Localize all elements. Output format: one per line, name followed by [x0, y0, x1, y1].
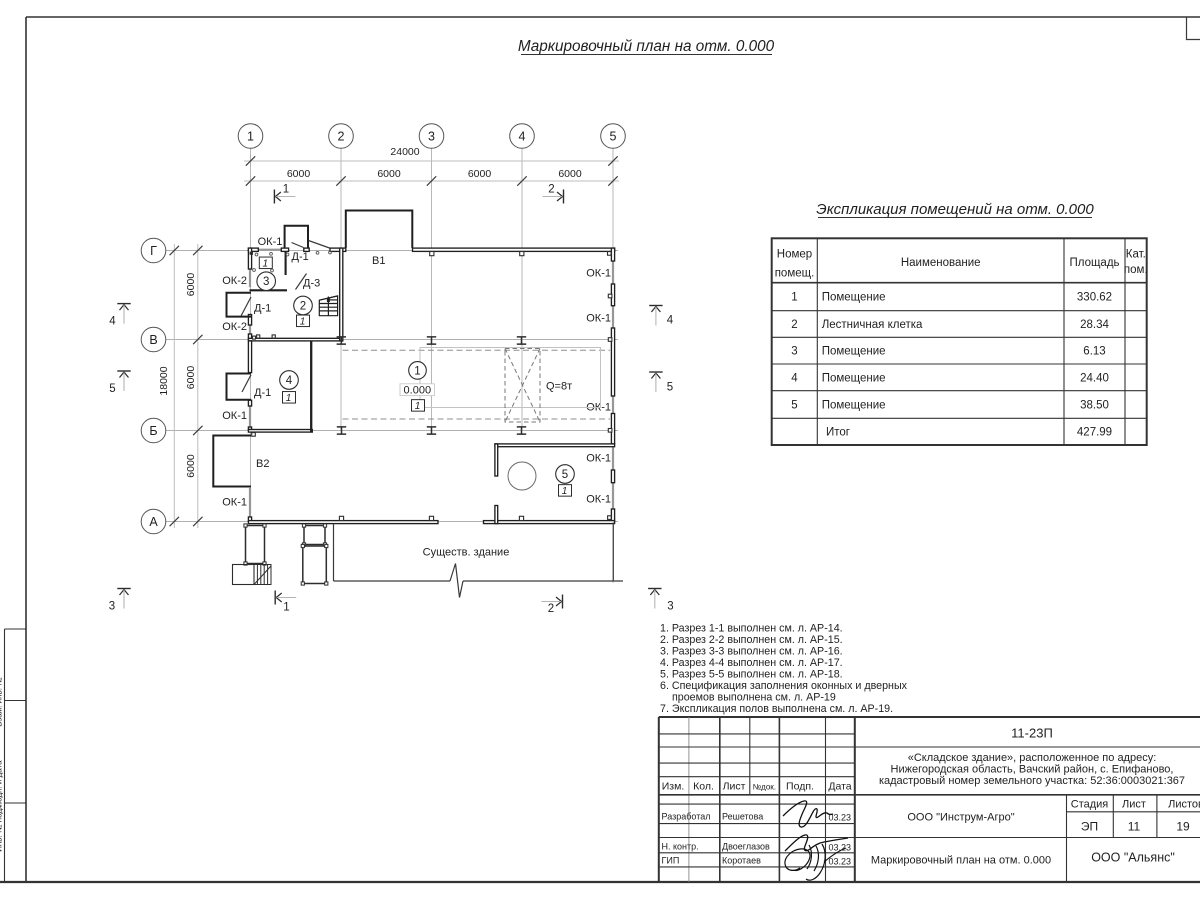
- svg-text:1: 1: [283, 602, 289, 614]
- svg-text:5: 5: [562, 469, 568, 481]
- svg-text:3. Разрез 3-3 выполнен см. л.: 3. Разрез 3-3 выполнен см. л. АР-16.: [660, 646, 843, 658]
- svg-text:Существ. здание: Существ. здание: [423, 547, 510, 559]
- svg-text:2: 2: [338, 130, 345, 144]
- svg-text:5: 5: [791, 400, 797, 412]
- svg-text:6000: 6000: [377, 168, 401, 180]
- svg-text:7. Экспликация полов выполнена: 7. Экспликация полов выполнена см. л. АР…: [660, 703, 893, 715]
- svg-text:Помещение: Помещение: [822, 372, 886, 384]
- svg-text:3: 3: [109, 601, 115, 613]
- svg-text:Помещение: Помещение: [822, 346, 886, 358]
- svg-text:Д-1: Д-1: [292, 251, 309, 263]
- svg-text:18000: 18000: [158, 366, 170, 395]
- svg-text:1. Разрез 1-1 выполнен см. л.: 1. Разрез 1-1 выполнен см. л. АР-14.: [660, 623, 843, 635]
- svg-text:Номер: Номер: [777, 249, 812, 261]
- svg-text:Д-1: Д-1: [254, 387, 271, 399]
- svg-text:В: В: [149, 333, 157, 347]
- svg-text:2: 2: [548, 184, 554, 196]
- svg-text:В1: В1: [372, 255, 385, 267]
- svg-text:ООО "Альянс": ООО "Альянс": [1091, 851, 1175, 865]
- svg-text:№док.: №док.: [753, 783, 776, 792]
- svg-text:пом.: пом.: [1124, 264, 1148, 276]
- svg-text:38.50: 38.50: [1080, 400, 1109, 412]
- svg-text:3: 3: [428, 130, 435, 144]
- svg-text:Стадия: Стадия: [1071, 799, 1109, 811]
- svg-text:ООО "Инструм-Агро": ООО "Инструм-Агро": [907, 812, 1014, 824]
- svg-text:3: 3: [791, 346, 797, 358]
- svg-text:Листов: Листов: [1168, 799, 1200, 811]
- svg-text:проемов выполнена см. л. АР-19: проемов выполнена см. л. АР-19: [672, 692, 836, 704]
- svg-text:Д-1: Д-1: [254, 303, 271, 315]
- svg-text:ОК-1: ОК-1: [586, 312, 611, 324]
- svg-text:4: 4: [791, 372, 798, 384]
- svg-text:6.13: 6.13: [1083, 346, 1105, 358]
- svg-text:Изм.: Изм.: [662, 781, 685, 793]
- svg-text:6000: 6000: [185, 273, 197, 297]
- svg-text:6000: 6000: [558, 168, 582, 180]
- svg-text:Коротаев: Коротаев: [722, 855, 761, 865]
- svg-text:24.40: 24.40: [1080, 372, 1109, 384]
- svg-text:Q=8т: Q=8т: [546, 381, 572, 393]
- svg-text:Площадь: Площадь: [1069, 257, 1119, 269]
- svg-text:1: 1: [286, 393, 292, 404]
- svg-text:6000: 6000: [185, 366, 197, 390]
- svg-text:2: 2: [548, 603, 554, 615]
- svg-text:помещ.: помещ.: [775, 268, 815, 280]
- svg-text:ГИП: ГИП: [662, 855, 680, 865]
- svg-text:0.000: 0.000: [404, 384, 432, 396]
- svg-text:3: 3: [667, 601, 673, 613]
- svg-text:Лист: Лист: [1122, 799, 1146, 811]
- svg-text:1: 1: [263, 259, 269, 270]
- svg-text:Б: Б: [149, 424, 157, 438]
- svg-text:Инв. № подл.: Инв. № подл.: [0, 802, 4, 852]
- svg-text:ОК-1: ОК-1: [222, 410, 247, 422]
- svg-text:Кат.: Кат.: [1126, 249, 1146, 261]
- svg-text:Нижегородская область, Вачский: Нижегородская область, Вачский район, с.…: [891, 764, 1174, 776]
- svg-text:Итог: Итог: [826, 427, 850, 439]
- svg-text:Помещение: Помещение: [822, 292, 886, 304]
- svg-text:Подп.: Подп.: [786, 781, 814, 793]
- svg-text:11: 11: [1128, 820, 1141, 834]
- svg-text:4. Разрез 4-4 выполнен см. л.: 4. Разрез 4-4 выполнен см. л. АР-17.: [660, 657, 843, 669]
- svg-text:24000: 24000: [390, 146, 419, 158]
- svg-text:ОК-1: ОК-1: [258, 236, 283, 248]
- svg-text:4: 4: [519, 130, 526, 144]
- svg-text:1: 1: [283, 184, 289, 196]
- svg-text:2: 2: [791, 319, 797, 331]
- svg-text:ОК-2: ОК-2: [222, 275, 247, 287]
- svg-text:Кол.: Кол.: [693, 781, 714, 793]
- svg-text:427.99: 427.99: [1077, 427, 1112, 439]
- svg-text:1: 1: [414, 365, 420, 377]
- svg-text:6000: 6000: [287, 168, 311, 180]
- svg-text:Г: Г: [150, 244, 157, 258]
- svg-text:1: 1: [562, 486, 568, 497]
- svg-text:Маркировочный план на отм. 0.0: Маркировочный план на отм. 0.000: [518, 38, 775, 55]
- svg-text:А: А: [149, 515, 158, 529]
- svg-text:2: 2: [300, 301, 306, 313]
- svg-text:1: 1: [415, 401, 421, 412]
- svg-text:Помещение: Помещение: [822, 400, 886, 412]
- svg-text:Разработал: Разработал: [662, 812, 711, 822]
- svg-text:5: 5: [667, 382, 673, 394]
- svg-text:ОК-1: ОК-1: [586, 452, 611, 464]
- svg-text:ОК-1: ОК-1: [586, 493, 611, 505]
- svg-text:330.62: 330.62: [1077, 292, 1112, 304]
- svg-text:Взам. инв. №: Взам. инв. №: [0, 677, 4, 727]
- svg-text:Подп. и дата: Подп. и дата: [0, 760, 4, 808]
- svg-text:«Складское здание», расположен: «Складское здание», расположенное по адр…: [908, 752, 1157, 764]
- svg-text:ОК-2: ОК-2: [222, 321, 247, 333]
- svg-text:1: 1: [791, 292, 797, 304]
- svg-text:ОК-1: ОК-1: [222, 497, 247, 509]
- svg-text:ЭП: ЭП: [1081, 820, 1098, 834]
- svg-text:4: 4: [667, 315, 674, 327]
- svg-text:Маркировочный план на отм. 0.0: Маркировочный план на отм. 0.000: [871, 855, 1051, 867]
- svg-text:Двоеглазов: Двоеглазов: [722, 841, 770, 851]
- svg-text:4: 4: [286, 375, 293, 387]
- svg-text:Решетова: Решетова: [722, 812, 763, 822]
- svg-text:19: 19: [1176, 820, 1190, 834]
- svg-text:Дата: Дата: [828, 781, 851, 793]
- svg-text:11-23П: 11-23П: [1011, 726, 1053, 741]
- svg-text:1: 1: [300, 317, 306, 328]
- svg-text:ОК-1: ОК-1: [586, 267, 611, 279]
- svg-text:Лестничная клетка: Лестничная клетка: [822, 319, 923, 331]
- svg-text:5: 5: [610, 130, 617, 144]
- svg-text:Н. контр.: Н. контр.: [662, 841, 699, 851]
- svg-text:2. Разрез 2-2 выполнен см. л.: 2. Разрез 2-2 выполнен см. л. АР-15.: [660, 634, 843, 646]
- svg-text:кадастровый номер земельного у: кадастровый номер земельного участка: 52…: [879, 775, 1185, 787]
- svg-text:Д-3: Д-3: [303, 278, 320, 290]
- svg-text:Наименование: Наименование: [901, 257, 981, 269]
- svg-text:3: 3: [263, 276, 269, 288]
- svg-text:6. Спецификация заполнения око: 6. Спецификация заполнения оконных и две…: [660, 680, 908, 692]
- svg-text:6000: 6000: [468, 168, 492, 180]
- svg-text:03.23: 03.23: [829, 857, 852, 867]
- svg-text:4: 4: [109, 316, 116, 328]
- svg-text:В2: В2: [256, 458, 269, 470]
- svg-text:Лист: Лист: [723, 781, 746, 793]
- svg-text:1: 1: [247, 130, 254, 144]
- svg-text:Экспликация помещений на отм.: Экспликация помещений на отм. 0.000: [816, 201, 1094, 218]
- svg-text:6000: 6000: [185, 454, 197, 478]
- svg-text:28.34: 28.34: [1080, 319, 1109, 331]
- svg-text:5: 5: [109, 383, 115, 395]
- svg-text:5. Разрез 5-5 выполнен см. л.: 5. Разрез 5-5 выполнен см. л. АР-18.: [660, 669, 843, 681]
